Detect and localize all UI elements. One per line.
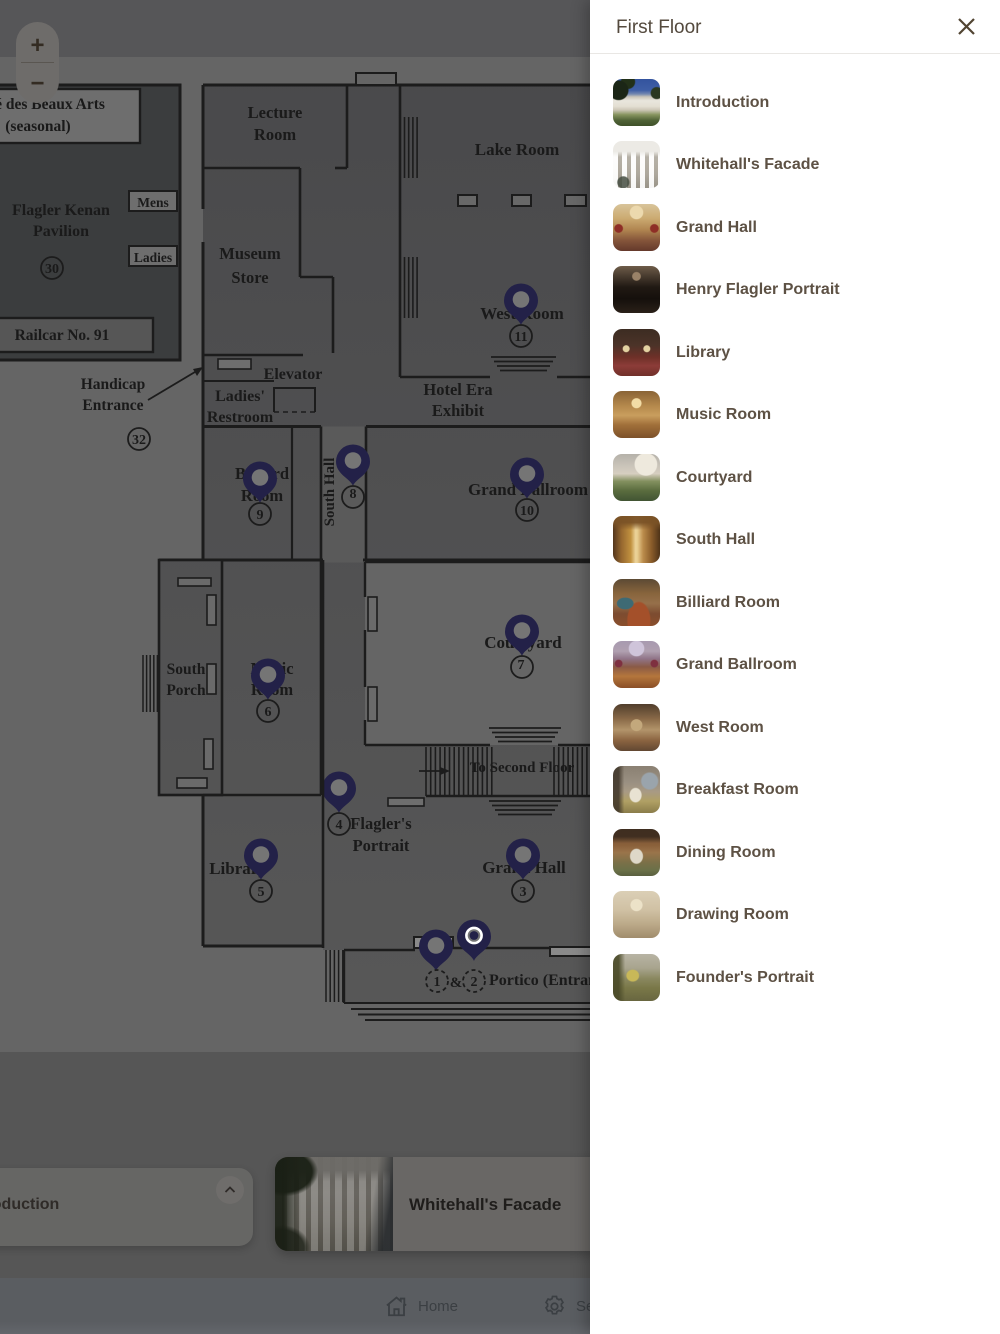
svg-text:South: South [167,661,206,678]
svg-text:Flagler Kenan: Flagler Kenan [12,202,110,219]
svg-text:Ladies': Ladies' [215,388,265,405]
svg-text:32: 32 [132,433,146,448]
svg-text:Handicap: Handicap [81,376,146,393]
svg-text:é des Beaux Arts: é des Beaux Arts [0,96,105,113]
svg-text:Restroom: Restroom [207,409,274,426]
svg-text:3: 3 [520,885,527,900]
svg-text:9: 9 [257,508,264,523]
svg-text:Hotel Era: Hotel Era [423,380,492,399]
svg-text:Lake Room: Lake Room [475,140,560,159]
svg-text:6: 6 [265,705,272,720]
svg-text:4: 4 [336,818,343,833]
svg-text:Porch: Porch [166,682,206,699]
svg-text:Entrance: Entrance [82,397,143,414]
svg-text:Ladies: Ladies [134,250,172,265]
svg-text:Portico (Entran: Portico (Entran [489,972,597,989]
svg-text:&: & [450,975,463,991]
svg-text:Mens: Mens [137,195,169,210]
svg-text:Exhibit: Exhibit [432,401,485,420]
svg-text:11: 11 [514,330,527,345]
svg-text:Railcar No. 91: Railcar No. 91 [15,327,110,344]
svg-text:To Second Floor: To Second Floor [470,760,575,776]
svg-text:Portrait: Portrait [353,836,410,855]
svg-text:8: 8 [350,487,357,502]
svg-text:Lecture: Lecture [248,103,303,122]
svg-text:Room: Room [254,125,296,144]
svg-text:Store: Store [231,268,268,287]
svg-text:10: 10 [520,504,534,519]
svg-text:1: 1 [434,975,441,990]
svg-text:Museum: Museum [219,244,281,263]
svg-text:30: 30 [45,262,59,277]
svg-text:5: 5 [258,885,265,900]
svg-text:2: 2 [471,975,478,990]
svg-text:Pavilion: Pavilion [33,223,89,240]
svg-text:7: 7 [518,658,525,673]
svg-text:Flagler's: Flagler's [350,814,412,833]
svg-text:(seasonal): (seasonal) [5,118,70,135]
svg-text:South Hall: South Hall [322,458,338,527]
